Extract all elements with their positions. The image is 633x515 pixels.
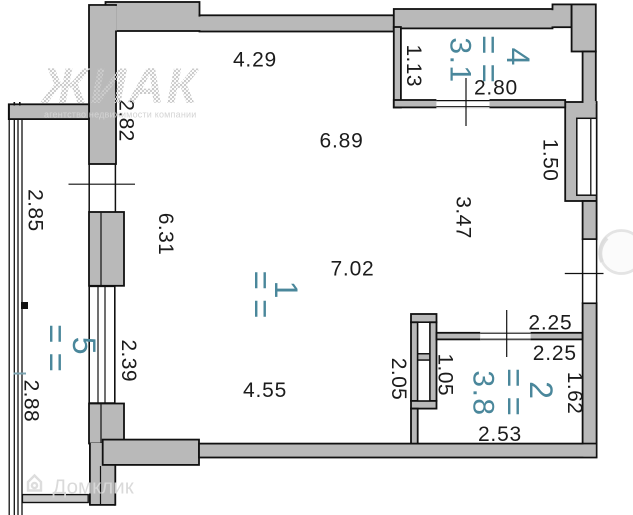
svg-text:3.47: 3.47 bbox=[452, 196, 475, 238]
svg-text:2.85: 2.85 bbox=[23, 189, 46, 231]
svg-text:4.55: 4.55 bbox=[243, 379, 287, 402]
svg-text:2.25: 2.25 bbox=[533, 342, 577, 365]
svg-text:1.13: 1.13 bbox=[402, 44, 425, 86]
svg-text:6.89: 6.89 bbox=[320, 130, 364, 153]
svg-text:3.8: 3.8 bbox=[467, 370, 500, 416]
svg-text:2.25: 2.25 bbox=[528, 312, 572, 335]
svg-text:Домклик: Домклик bbox=[53, 476, 135, 499]
svg-text:4.29: 4.29 bbox=[233, 49, 277, 72]
svg-text:2.05: 2.05 bbox=[387, 358, 410, 400]
svg-text:= =: = = bbox=[38, 324, 75, 372]
svg-text:1.62: 1.62 bbox=[563, 372, 586, 414]
svg-text:ЖИАК: ЖИАК bbox=[39, 58, 200, 114]
svg-text:1.50: 1.50 bbox=[539, 139, 562, 181]
svg-text:агентство недвижимости компани: агентство недвижимости компании bbox=[44, 110, 196, 120]
svg-text:2.88: 2.88 bbox=[20, 380, 43, 422]
svg-text:2.53: 2.53 bbox=[478, 423, 522, 446]
svg-text:6.31: 6.31 bbox=[154, 213, 177, 255]
svg-text:7.02: 7.02 bbox=[330, 258, 374, 281]
svg-text:= =: = = bbox=[243, 271, 280, 319]
svg-text:2.39: 2.39 bbox=[117, 339, 140, 381]
svg-text:1.05: 1.05 bbox=[434, 353, 457, 395]
svg-text:= =: = = bbox=[496, 368, 533, 416]
svg-text:3.1: 3.1 bbox=[444, 37, 477, 83]
